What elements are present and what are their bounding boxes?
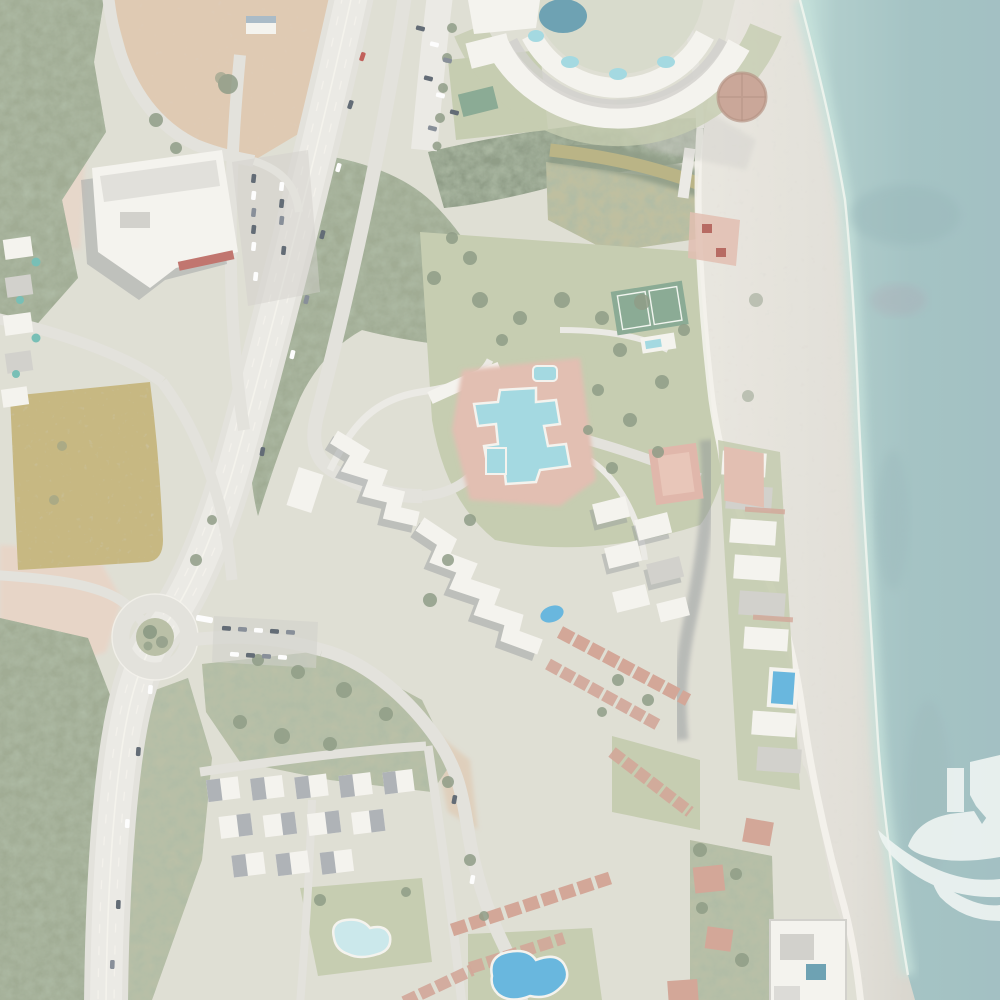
logo-chimney [947,768,964,812]
haze-overlay [0,0,1000,1000]
satellite-map-canvas [0,0,1000,1000]
aerial-scene [0,0,1000,1000]
